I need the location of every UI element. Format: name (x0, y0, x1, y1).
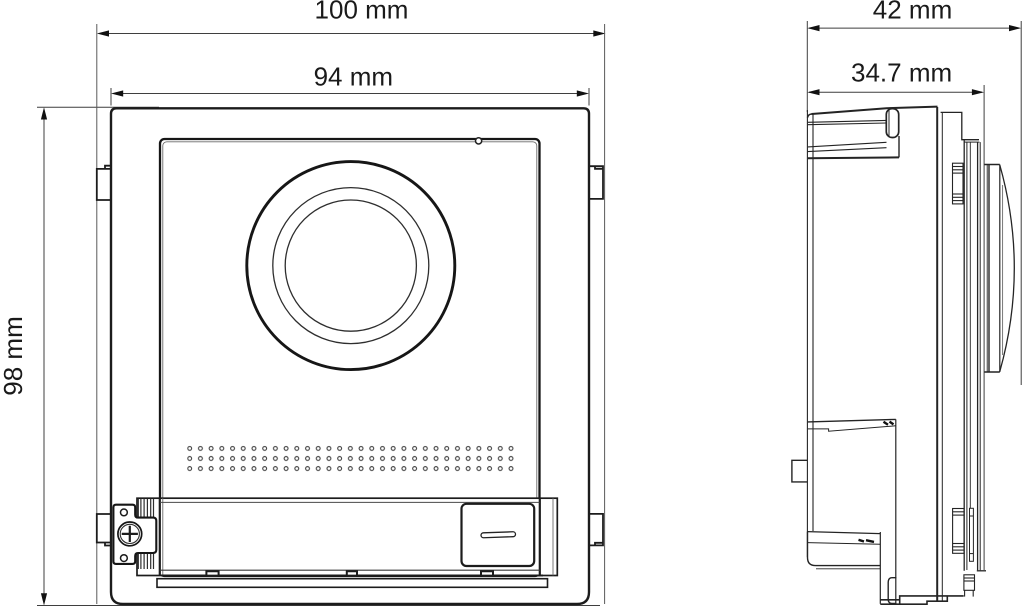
svg-text:94 mm: 94 mm (314, 62, 393, 92)
svg-text:100 mm: 100 mm (315, 0, 409, 25)
svg-text:34.7 mm: 34.7 mm (851, 58, 952, 88)
svg-text:42 mm: 42 mm (873, 0, 952, 25)
svg-text:98 mm: 98 mm (0, 316, 28, 395)
